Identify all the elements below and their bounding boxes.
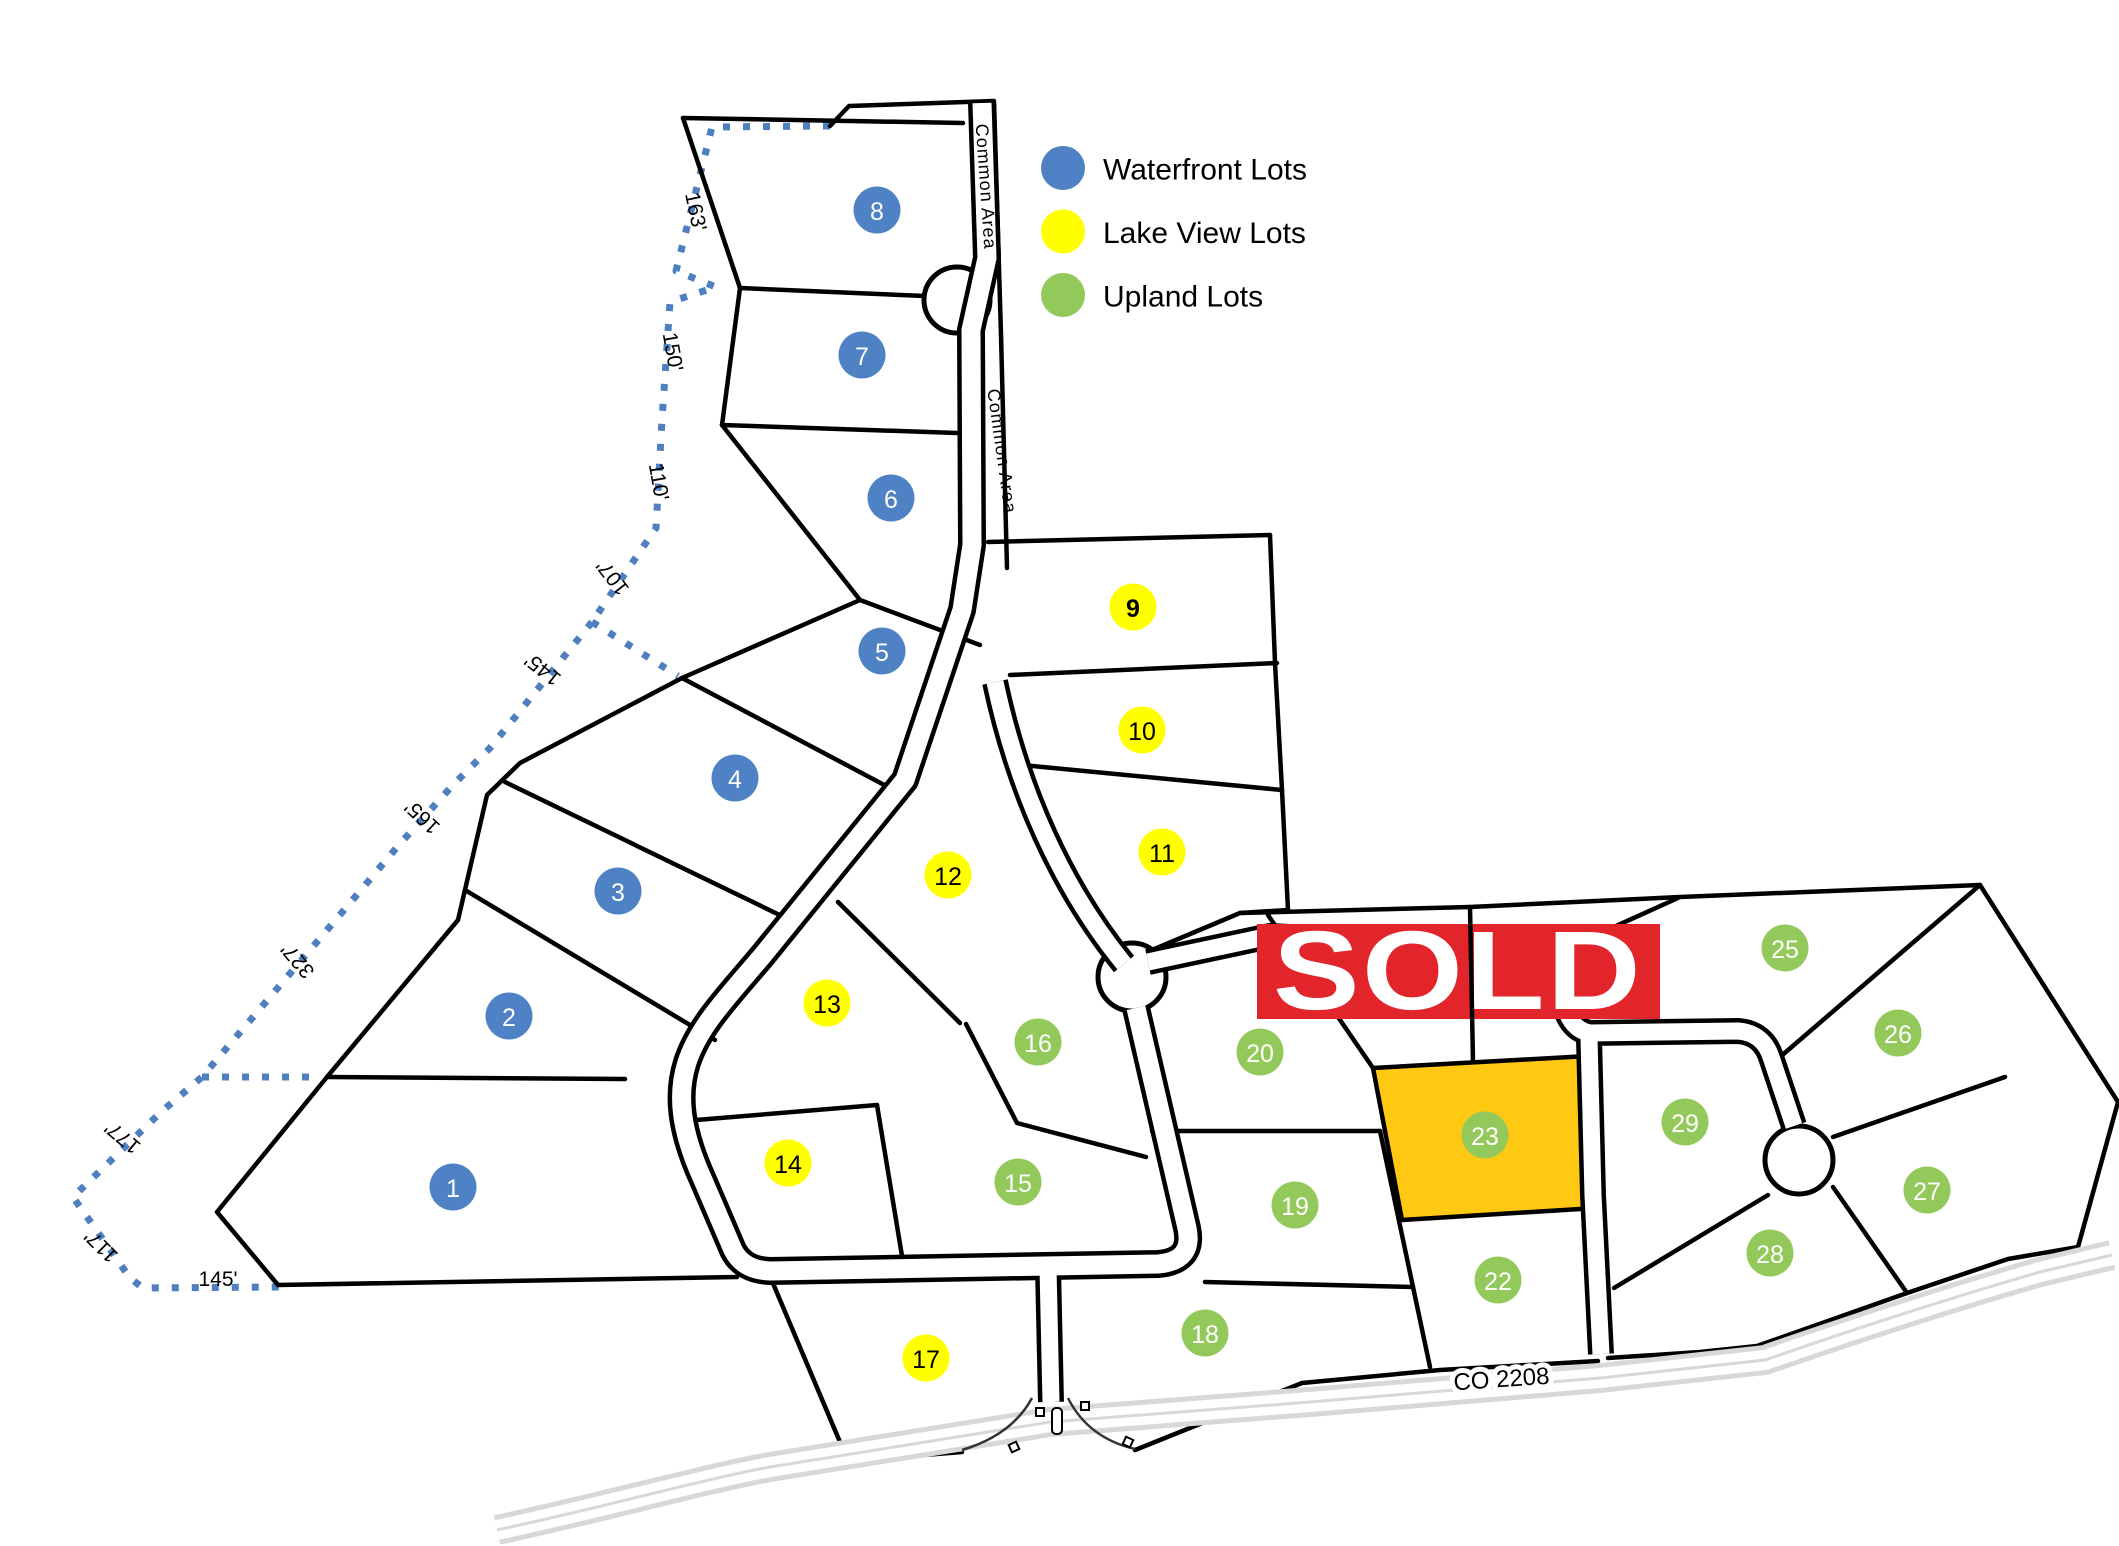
- lot-marker-14[interactable]: 14: [765, 1140, 812, 1187]
- lot-marker-7[interactable]: 7: [839, 332, 886, 379]
- lot-number-label: 20: [1246, 1040, 1274, 1068]
- lot-marker-6[interactable]: 6: [868, 475, 915, 522]
- measurement-label-7: 177': [100, 1116, 145, 1159]
- measurement-label-9: 145': [198, 1268, 237, 1291]
- legend-label-upland: Upland Lots: [1103, 281, 1263, 314]
- plat-map-page: 163'150'110'107'145'165'327'177'117'145': [0, 0, 2119, 1546]
- measurement-label-3: 107': [592, 555, 634, 600]
- lot-marker-15[interactable]: 15: [995, 1159, 1042, 1206]
- lot-marker-20[interactable]: 20: [1237, 1029, 1284, 1076]
- plat-map: 163'150'110'107'145'165'327'177'117'145': [0, 0, 2119, 1546]
- road-label-1: Common Area: [983, 387, 1020, 515]
- lot-marker-10[interactable]: 10: [1119, 707, 1166, 754]
- measurement-label-8: 117': [80, 1224, 123, 1267]
- legend-item-waterfront: Waterfront Lots: [1041, 146, 1307, 190]
- lot-marker-19[interactable]: 19: [1272, 1182, 1319, 1229]
- lot-number-label: 12: [934, 863, 962, 891]
- legend: Waterfront LotsLake View LotsUpland Lots: [1041, 146, 1307, 317]
- lot-number-label: 14: [774, 1151, 802, 1179]
- lot-marker-8[interactable]: 8: [854, 187, 901, 234]
- lot-marker-1[interactable]: 1: [430, 1164, 477, 1211]
- legend-item-upland: Upland Lots: [1041, 273, 1263, 317]
- measurement-label-1: 150': [658, 331, 687, 373]
- lot-number-label: 10: [1128, 718, 1156, 746]
- lot-marker-26[interactable]: 26: [1875, 1010, 1922, 1057]
- lot-number-label: 8: [870, 198, 884, 226]
- lot-marker-28[interactable]: 28: [1747, 1230, 1794, 1277]
- lot-number-label: 22: [1484, 1268, 1512, 1296]
- lot-number-label: 13: [813, 991, 841, 1019]
- lot-marker-11[interactable]: 11: [1139, 829, 1186, 876]
- legend-item-lakeview: Lake View Lots: [1041, 210, 1306, 254]
- lot-marker-2[interactable]: 2: [486, 993, 533, 1040]
- measurement-label-2: 110': [644, 461, 673, 502]
- lot-number-label: 23: [1471, 1123, 1499, 1151]
- measurement-labels: 163'150'110'107'145'165'327'177'117'145': [80, 190, 711, 1291]
- lot-marker-25[interactable]: 25: [1762, 925, 1809, 972]
- lot-marker-29[interactable]: 29: [1662, 1099, 1709, 1146]
- culdesac-circles: [924, 267, 1833, 1194]
- lot-number-label: 5: [875, 639, 889, 667]
- county-road: [497, 1255, 2112, 1530]
- sold-banner: SOLD: [1257, 908, 1660, 1033]
- lot-marker-27[interactable]: 27: [1904, 1167, 1951, 1214]
- lot-number-label: 27: [1913, 1178, 1941, 1206]
- lot-number-label: 1: [446, 1175, 460, 1203]
- lot-number-label: 7: [855, 343, 869, 371]
- lot-number-label: 28: [1756, 1241, 1784, 1269]
- lot-number-label: 29: [1671, 1110, 1699, 1138]
- lot-marker-13[interactable]: 13: [804, 980, 851, 1027]
- lot-number-label: 4: [728, 766, 742, 794]
- lot-marker-3[interactable]: 3: [595, 868, 642, 915]
- lot-number-label: 25: [1771, 936, 1799, 964]
- lot-number-label: 6: [884, 486, 898, 514]
- legend-swatch-upland: [1041, 273, 1085, 317]
- sold-banner-text: SOLD: [1273, 908, 1643, 1033]
- lot-number-label: 26: [1884, 1021, 1912, 1049]
- lot-marker-16[interactable]: 16: [1015, 1019, 1062, 1066]
- legend-label-waterfront: Waterfront Lots: [1103, 154, 1307, 187]
- lot-marker-17[interactable]: 17: [903, 1335, 950, 1382]
- lot-number-label: 11: [1149, 840, 1175, 868]
- legend-swatch-lakeview: [1041, 210, 1085, 254]
- lot-divider-21-24: [1470, 907, 1473, 1062]
- legend-swatch-waterfront: [1041, 146, 1085, 190]
- lot-number-label: 2: [502, 1004, 516, 1032]
- culdesac-east: [1765, 1126, 1833, 1194]
- lot-marker-12[interactable]: 12: [925, 852, 972, 899]
- lot-number-label: 9: [1126, 595, 1140, 623]
- lot-marker-18[interactable]: 18: [1182, 1310, 1229, 1357]
- lake-boundary-dotted: [73, 126, 830, 1288]
- legend-label-lakeview: Lake View Lots: [1103, 217, 1306, 250]
- lot-marker-23[interactable]: 23: [1462, 1112, 1509, 1159]
- lot-number-label: 19: [1281, 1193, 1309, 1221]
- lot-number-label: 15: [1004, 1170, 1032, 1198]
- lot-marker-22[interactable]: 22: [1475, 1257, 1522, 1304]
- lot-marker-4[interactable]: 4: [712, 755, 759, 802]
- lot-number-label: 3: [611, 879, 625, 907]
- measurement-label-4: 145': [521, 648, 566, 690]
- lot-marker-5[interactable]: 5: [859, 628, 906, 675]
- lot-number-label: 17: [912, 1346, 940, 1374]
- lot-marker-9[interactable]: 9: [1110, 584, 1157, 631]
- lot-number-label: 16: [1024, 1030, 1052, 1058]
- lot-number-label: 18: [1191, 1321, 1219, 1349]
